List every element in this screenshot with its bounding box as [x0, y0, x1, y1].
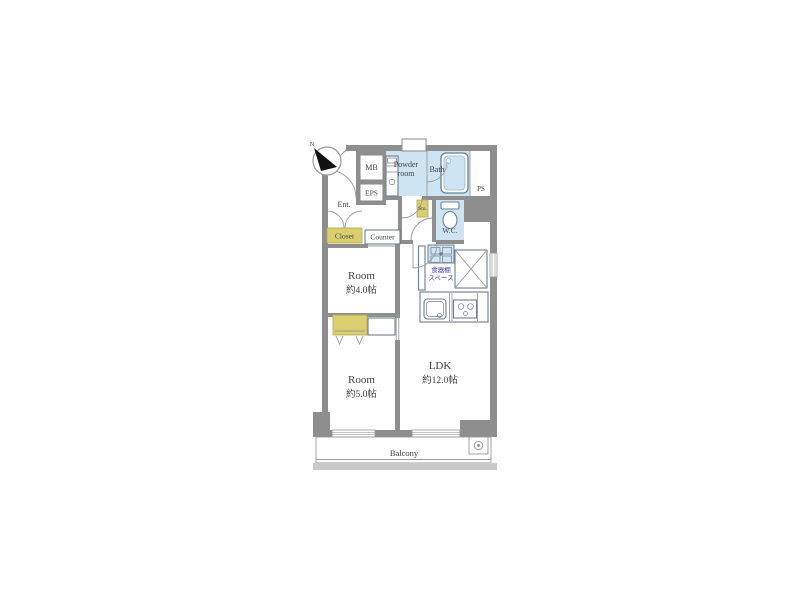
label-ent: Ent. [337, 200, 350, 209]
label-ps: PS [477, 185, 485, 193]
wall-room4-top [328, 244, 368, 248]
powder-bay [402, 139, 426, 151]
balcony-edge-band [313, 463, 497, 470]
wall-right-lower [490, 277, 497, 420]
wall-main-upper [395, 244, 400, 318]
label-mb: MB [365, 163, 377, 172]
wall-left [322, 168, 328, 437]
label-room-south-name: Room [348, 374, 375, 386]
wall-wc-bottom [436, 240, 464, 244]
wall-shaft-block [464, 196, 490, 222]
label-room-south-size: 約5.0帖 [346, 388, 377, 400]
wall-right-upper [490, 145, 497, 253]
label-sto: Sto. [418, 206, 427, 212]
wall-main-lower [395, 340, 400, 430]
toilet [441, 202, 459, 229]
wall-corner-bottom-left [313, 412, 330, 437]
room5-storage-box [368, 318, 395, 335]
label-counter: Counter [370, 233, 395, 242]
floorplan-svg: N MB EPS Ent. Closet Counter Powder room… [0, 0, 807, 600]
wall-corner-bottom-right [460, 420, 497, 437]
wall-hall-bottom [402, 240, 413, 244]
dish-shelf-knob [439, 252, 443, 256]
label-wc: W.C. [442, 226, 457, 235]
label-compass-north: N [310, 141, 315, 148]
label-room-north-size: 約4.0帖 [346, 284, 377, 296]
label-room-north-name: Room [348, 270, 375, 282]
label-eps: EPS [365, 189, 378, 198]
shaft-xbox [455, 250, 487, 288]
balcony-drain-dot [477, 444, 480, 447]
label-ldk-size: 約12.0帖 [422, 374, 458, 386]
wall-top-right [426, 145, 497, 151]
label-closet: Closet [335, 232, 355, 241]
label-dish-shelf-2: スペース [428, 274, 453, 282]
toilet-tank [441, 202, 459, 209]
label-bath: Bath [429, 165, 444, 174]
label-balcony: Balcony [390, 448, 419, 458]
wall-bottom-center [375, 430, 412, 437]
floorplan-page: N MB EPS Ent. Closet Counter Powder room… [0, 0, 807, 600]
window-room5 [332, 430, 375, 437]
room5-closet-box [333, 315, 367, 335]
kitchen-side-panel [419, 246, 426, 290]
window-right-wall [490, 253, 497, 277]
label-powder-2: room [398, 169, 416, 178]
wall-below-powder-b [422, 196, 464, 200]
wall-wc-left [432, 200, 436, 242]
wall-bottom-a [328, 430, 332, 437]
window-ldk [412, 430, 460, 437]
label-dish-shelf-1: 食器棚 [431, 265, 451, 274]
wall-below-powder-a [386, 196, 402, 200]
kitchen-counter [420, 292, 488, 322]
wall-top-left [346, 145, 402, 151]
dish-shelf [428, 245, 454, 263]
label-ldk-name: LDK [429, 360, 452, 372]
bathtub [441, 153, 468, 193]
label-powder-1: Powder [394, 160, 419, 169]
